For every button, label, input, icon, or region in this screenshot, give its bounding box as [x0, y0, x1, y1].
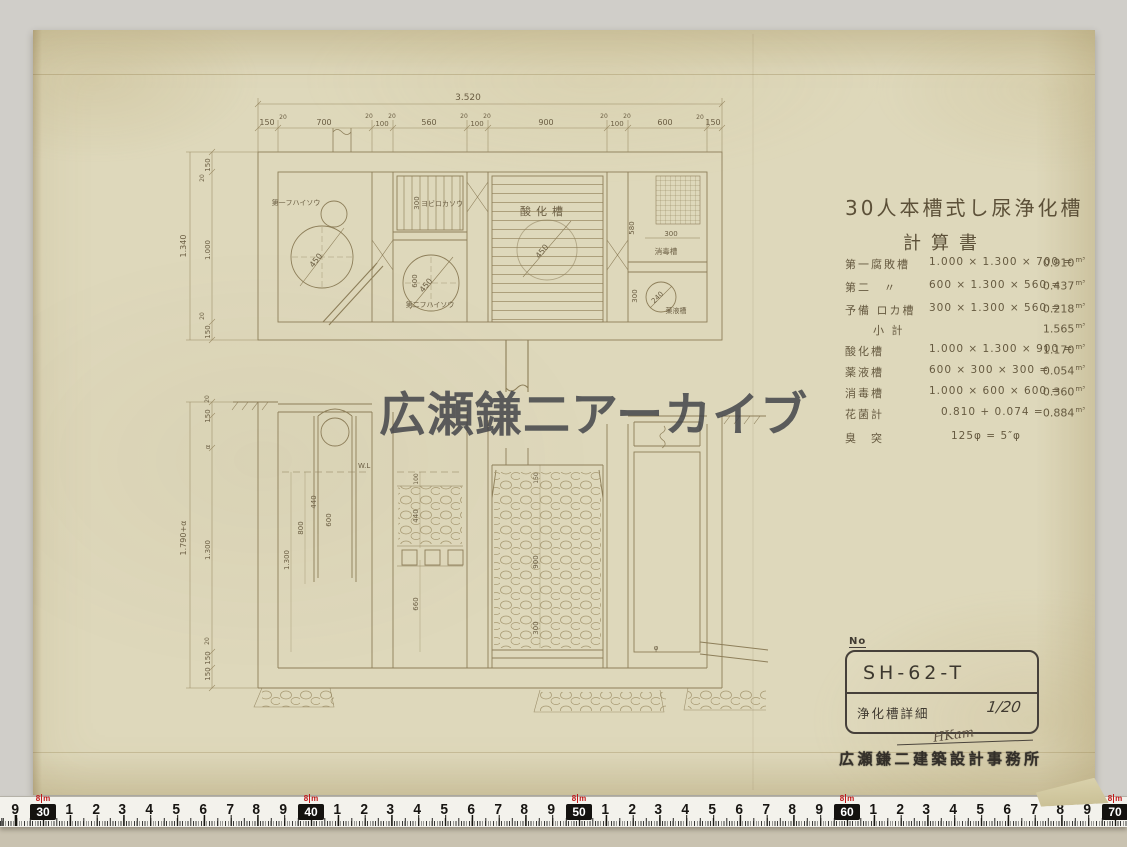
- calc-row: 予備 ロカ槽 300 × 1.300 × 560 = 0.218m³: [845, 302, 1087, 320]
- calc-row-formula: 600 × 300 × 300 =: [929, 364, 1049, 376]
- dim-label: 580: [628, 221, 636, 234]
- calc-row-value: 1.170m³: [1043, 343, 1085, 357]
- ruler-digit: 4: [682, 801, 690, 818]
- ruler-digit: 3: [387, 801, 395, 818]
- dim-label: 900: [532, 555, 540, 568]
- dim-label: 150: [204, 651, 212, 664]
- calc-row: 消毒槽 1.000 × 600 × 600 = 0.360m³: [845, 385, 1087, 403]
- ruler-decimeter-box: 50: [566, 804, 592, 820]
- calc-row-formula: 125φ = 5″φ: [951, 430, 1021, 442]
- value: 0.218: [1043, 303, 1075, 316]
- dim-label: 20: [696, 114, 704, 121]
- calc-row-label: 小 計: [873, 322, 905, 338]
- dim-label: 20: [388, 113, 396, 120]
- ruler-digit: 1: [601, 801, 609, 818]
- ruler-digit: 3: [923, 801, 931, 818]
- dim-label: 20: [204, 395, 211, 403]
- calc-row-label: 予備 ロカ槽: [845, 302, 916, 318]
- calc-row: 第二 〃 600 × 1.300 × 560 = 0.437m³: [845, 279, 1087, 297]
- calc-subtitle: 計算書: [903, 229, 987, 255]
- ruler-digit: 4: [414, 801, 422, 818]
- dim-label: 20: [279, 114, 287, 121]
- dim-label: 20: [483, 113, 491, 120]
- dim-label: 20: [623, 113, 631, 120]
- title-block-row: 浄化槽詳細 1/20: [847, 694, 1037, 730]
- unit: m³: [1075, 406, 1085, 414]
- value: 1.170: [1043, 344, 1075, 357]
- ruler-digit: 5: [440, 801, 448, 818]
- calc-row: 小 計 1.565m³: [845, 322, 1087, 340]
- water-level-label: W.L: [358, 462, 370, 470]
- dim-label: 1.300: [204, 540, 212, 560]
- ruler-digit: 6: [199, 801, 207, 818]
- ruler-meter-label: 8m: [30, 794, 56, 803]
- calc-row-value: 0.360m³: [1043, 385, 1085, 399]
- ruler-digit: 1: [65, 801, 73, 818]
- measuring-tape-ruler: 98m301234567898m401234567898m50123456789…: [0, 796, 1127, 827]
- ruler-decimeter-box: 60: [834, 804, 860, 820]
- dim-label: 150: [204, 409, 212, 422]
- calc-row-label: 第二 〃: [845, 279, 897, 295]
- dim-label: 150: [705, 118, 720, 127]
- calc-row-value: 0.910m³: [1043, 256, 1085, 270]
- calc-row-formula: 1.000 × 600 × 600 =: [929, 385, 1061, 397]
- dim-label: 1.340: [179, 235, 188, 258]
- compartment-label: 酸化槽: [520, 204, 568, 218]
- compartment-label: 薬液槽: [666, 306, 687, 315]
- value: 0.437: [1043, 280, 1075, 293]
- dim-label: 700: [316, 118, 331, 127]
- ruler-digit: 9: [280, 801, 288, 818]
- ruler-digit: 3: [119, 801, 127, 818]
- unit: m³: [1075, 343, 1085, 351]
- unit: m³: [1075, 302, 1085, 310]
- ruler-digit: 4: [950, 801, 958, 818]
- dim-label: 300: [631, 289, 639, 302]
- ruler-digit: 7: [226, 801, 234, 818]
- dim-label: 600: [411, 274, 419, 287]
- ruler-meter-label: 8m: [834, 794, 860, 803]
- ruler-digit: 2: [628, 801, 636, 818]
- ruler-digit: 9: [11, 801, 19, 818]
- calc-row-label: 花菌計: [845, 406, 884, 422]
- calc-row: 花菌計 0.810 + 0.074 = 0.884m³: [845, 406, 1087, 424]
- ruler-decimeter-box: 40: [298, 804, 324, 820]
- ruler-meter-label: 8m: [566, 794, 592, 803]
- dim-label: 150: [204, 158, 212, 171]
- ruler-digit: 5: [172, 801, 180, 818]
- dim-label: 20: [199, 312, 206, 320]
- dim-label: 440: [412, 509, 420, 522]
- calc-row: 第一腐敗槽 1.000 × 1.300 × 700 = 0.910m³: [845, 256, 1087, 274]
- office-stamp: 広瀬鎌二建築設計事務所: [839, 748, 1057, 769]
- scan-surface: [0, 826, 1127, 847]
- dim-label: 560: [421, 118, 436, 127]
- ruler-digit: 7: [762, 801, 770, 818]
- ruler-digit: 6: [1003, 801, 1011, 818]
- dim-label: 150: [533, 472, 540, 484]
- ruler-digit: 7: [494, 801, 502, 818]
- dim-label: 3.520: [455, 93, 481, 103]
- unit: m³: [1075, 364, 1085, 372]
- ruler-digit: 8: [789, 801, 797, 818]
- section-linework: [232, 402, 768, 712]
- plan-linework: [258, 128, 722, 392]
- dim-label: 20: [365, 113, 373, 120]
- dim-label: 20: [204, 637, 211, 645]
- dim-label: α: [204, 444, 212, 449]
- ruler-digit: 6: [735, 801, 743, 818]
- dim-label: 100: [413, 473, 420, 485]
- ruler-digit: 8: [253, 801, 261, 818]
- dim-label: 600: [325, 513, 333, 526]
- compartment-label: 消毒槽: [655, 246, 678, 256]
- ruler-digit: 1: [333, 801, 341, 818]
- scanned-drawing-sheet: 3.520 150 20 700 20 100 20 560 20 100 20…: [0, 0, 1127, 847]
- unit: m³: [1075, 322, 1085, 330]
- ruler-decimeter-box: 70: [1102, 804, 1127, 820]
- drawing-no-label: No: [849, 636, 866, 648]
- ruler-digit: 9: [548, 801, 556, 818]
- calc-row-label: 臭 突: [845, 430, 884, 446]
- archive-watermark: 広瀬鎌二アーカイブ: [379, 390, 808, 442]
- unit: m³: [1075, 256, 1085, 264]
- compartment-label: 第二フハイソウ: [406, 300, 455, 309]
- dim-label: 100: [610, 120, 623, 128]
- dim-label: 1.790+α: [179, 521, 188, 556]
- dim-label: 300: [532, 621, 540, 634]
- dim-label: 240: [650, 290, 665, 305]
- calc-row-label: 消毒槽: [845, 385, 884, 401]
- dim-label: 900: [538, 118, 553, 127]
- ruler-digit: 8: [521, 801, 529, 818]
- calc-title: 30人本槽式し尿浄化槽: [845, 192, 1083, 221]
- calc-row-label: 第一腐敗槽: [845, 256, 910, 272]
- value: 0.054: [1043, 365, 1075, 378]
- dim-label: 20: [199, 174, 206, 182]
- compartment-label: ヨビロカソウ: [421, 199, 463, 208]
- dim-label: 20: [600, 113, 608, 120]
- calc-row-formula: 0.810 + 0.074 =: [941, 406, 1044, 418]
- calc-row-value: 0.218m³: [1043, 302, 1085, 316]
- dim-label: 150: [259, 118, 274, 127]
- dim-label: 1.000: [204, 240, 212, 260]
- drawing-title: 浄化槽詳細: [857, 703, 930, 722]
- compartment-label: 第一フハイソウ: [272, 198, 321, 207]
- calc-row-value: 1.565m³: [1043, 322, 1085, 336]
- calc-row-value: 0.054m³: [1043, 364, 1085, 378]
- ruler-digit: 9: [816, 801, 824, 818]
- calc-row-value: 0.437m³: [1043, 279, 1085, 293]
- ruler-digit: 3: [655, 801, 663, 818]
- dim-label: 20: [460, 113, 468, 120]
- dim-label: 150: [204, 325, 212, 338]
- calc-row: 薬液槽 600 × 300 × 300 = 0.054m³: [845, 364, 1087, 382]
- ruler-digit: 2: [896, 801, 904, 818]
- dim-label: 450: [418, 277, 435, 294]
- calc-row-value: [1084, 430, 1085, 444]
- value: 0.360: [1043, 386, 1075, 399]
- calc-row-label: 酸化槽: [845, 343, 884, 359]
- ruler-digit: 2: [92, 801, 100, 818]
- value: 0.884: [1043, 407, 1075, 420]
- ruler-digit: 5: [976, 801, 984, 818]
- ruler-digit: 5: [708, 801, 716, 818]
- dim-label: 300: [664, 230, 677, 238]
- value: 1.565: [1043, 323, 1075, 336]
- dim-label: 300: [413, 196, 421, 209]
- dim-label: 100: [470, 120, 483, 128]
- dim-label: 800: [297, 521, 305, 534]
- ruler-digit: 1: [869, 801, 877, 818]
- dim-label: φ: [654, 644, 659, 652]
- ruler-decimeter-box: 30: [30, 804, 56, 820]
- dim-label: 150: [204, 667, 212, 680]
- dim-label: 600: [657, 118, 672, 127]
- ruler-meter-label: 8m: [298, 794, 324, 803]
- dim-label: 1.300: [283, 550, 291, 570]
- ruler-digit: 2: [360, 801, 368, 818]
- drawing-code: SH-62-T: [847, 652, 1037, 694]
- calc-row-formula: 600 × 1.300 × 560 =: [929, 279, 1061, 291]
- ruler-digit: 6: [467, 801, 475, 818]
- value: 0.910: [1043, 257, 1075, 270]
- dim-label: 440: [310, 495, 318, 508]
- calc-row-value: 0.884m³: [1043, 406, 1085, 420]
- calc-row-label: 薬液槽: [845, 364, 884, 380]
- title-block-box: SH-62-T 浄化槽詳細 1/20: [845, 650, 1039, 734]
- unit: m³: [1075, 385, 1085, 393]
- calc-row: 酸化槽 1.000 × 1.300 × 900 = 1.170m³: [845, 343, 1087, 361]
- title-block: No SH-62-T 浄化槽詳細 1/20 HKam 広瀬鎌二建築設計事務所: [845, 638, 1057, 774]
- unit: m³: [1075, 279, 1085, 287]
- drawing-scale: 1/20: [986, 698, 1022, 716]
- ruler-digit: 7: [1030, 801, 1038, 818]
- calc-row-formula: 300 × 1.300 × 560 =: [929, 302, 1061, 314]
- calculation-sheet: 30人本槽式し尿浄化槽 計算書 第一腐敗槽 1.000 × 1.300 × 70…: [845, 192, 1087, 452]
- calc-row: 臭 突 125φ = 5″φ: [845, 430, 1087, 448]
- dim-label: 660: [412, 597, 420, 610]
- dim-label: 100: [375, 120, 388, 128]
- ruler-digit: 4: [146, 801, 154, 818]
- ruler-cm-ticks: [0, 815, 1127, 826]
